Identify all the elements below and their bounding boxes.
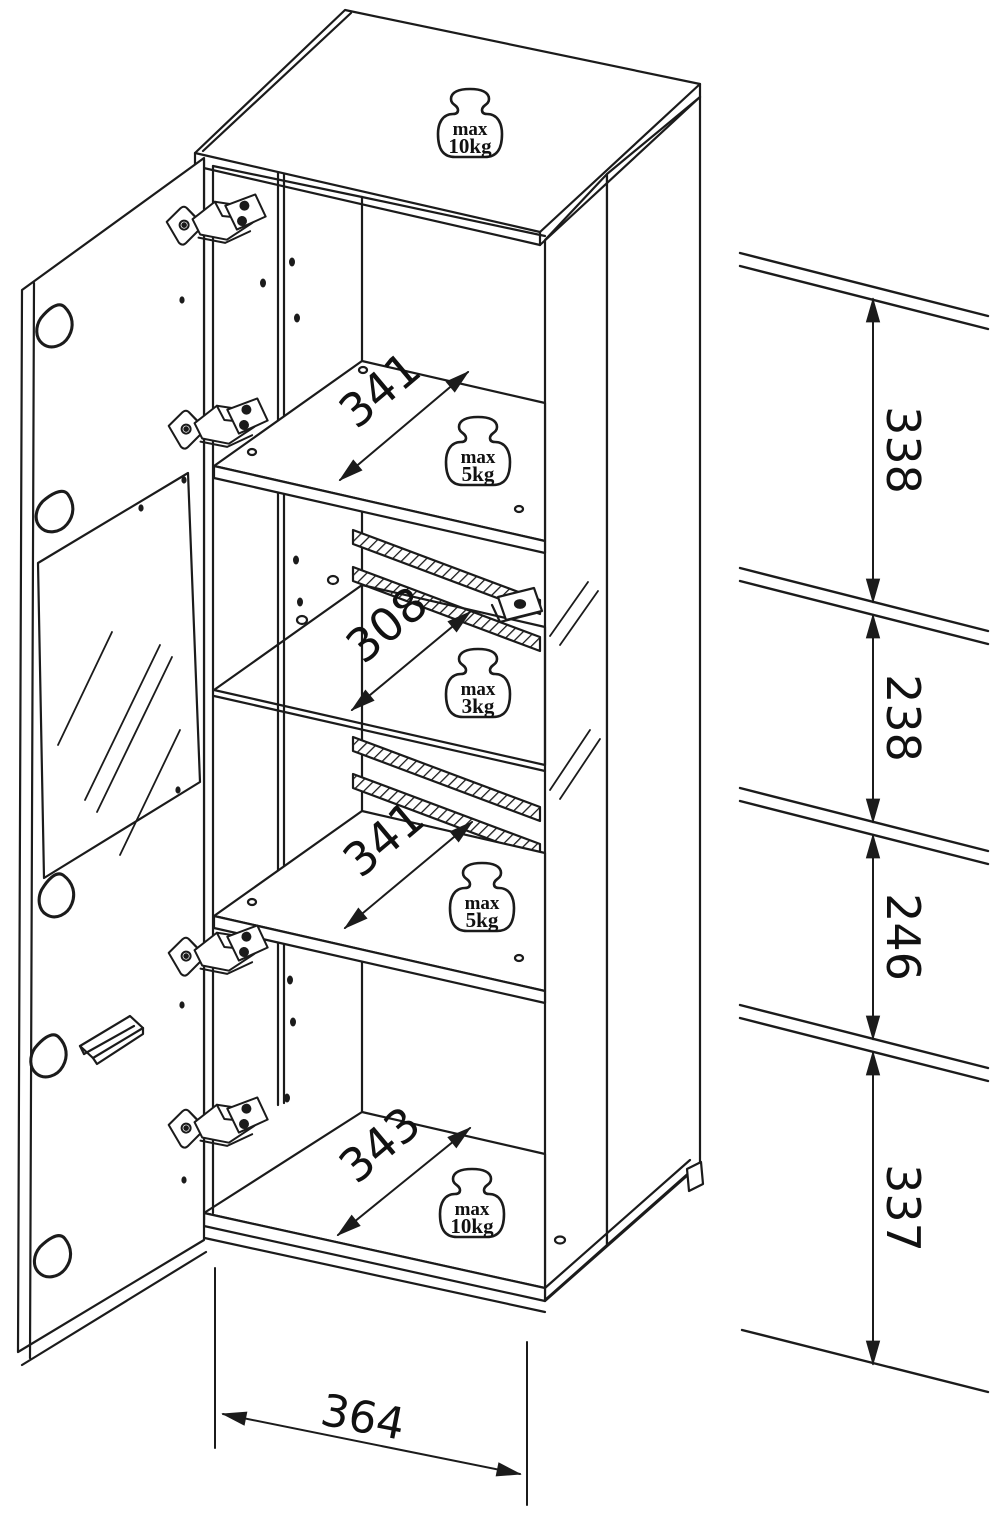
dim-label-overall-width: 364 — [317, 1385, 409, 1451]
weight-label-kg: 10kg — [448, 134, 492, 158]
overall-width-dimension — [215, 1268, 527, 1505]
dim-label-glass-shelf: 308 — [336, 576, 438, 674]
right-side-panel — [545, 97, 700, 1300]
front-left-stile — [204, 160, 213, 1220]
weight-label-kg: 10kg — [450, 1214, 494, 1238]
dim-label-height-upper-middle: 238 — [876, 674, 930, 762]
weight-icon-glass-shelf: max 3kg — [446, 649, 510, 718]
dim-label-height-top: 338 — [876, 406, 930, 494]
weight-label-kg: 3kg — [462, 694, 495, 718]
cabinet-line-drawing: 341 308 341 343 364 338 238 246 337 max … — [0, 0, 1000, 1522]
weight-label-kg: 5kg — [466, 908, 499, 932]
section-height-dimensions — [740, 253, 988, 1392]
weight-limit-icons: max 10kg max 5kg max 3kg max 5kg max 10k… — [438, 89, 514, 1238]
dim-label-height-lower-middle: 246 — [876, 893, 930, 981]
weight-label-kg: 5kg — [462, 462, 495, 486]
section-tick-lines — [740, 253, 988, 1392]
open-door — [18, 158, 270, 1365]
dim-label-height-bottom: 337 — [876, 1164, 930, 1252]
furniture-dimension-diagram: 341 308 341 343 364 338 238 246 337 max … — [0, 0, 1000, 1522]
cabinet-carcass — [195, 10, 703, 1312]
